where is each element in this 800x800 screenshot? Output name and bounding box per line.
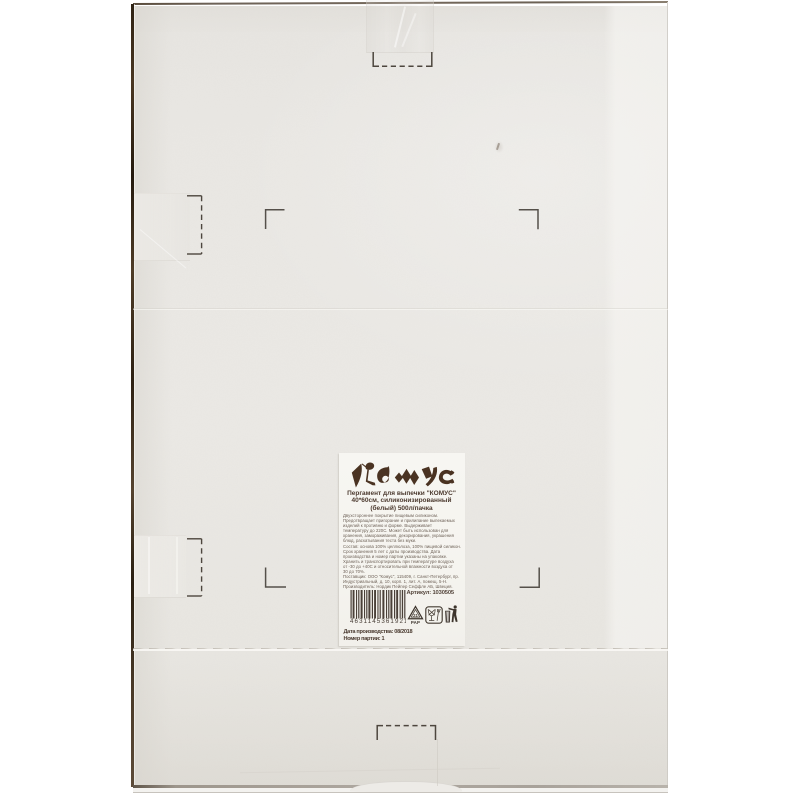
svg-text:4631145361921: 4631145361921 (350, 618, 406, 624)
svg-text:PAP: PAP (410, 620, 419, 625)
svg-text:21: 21 (413, 613, 418, 618)
